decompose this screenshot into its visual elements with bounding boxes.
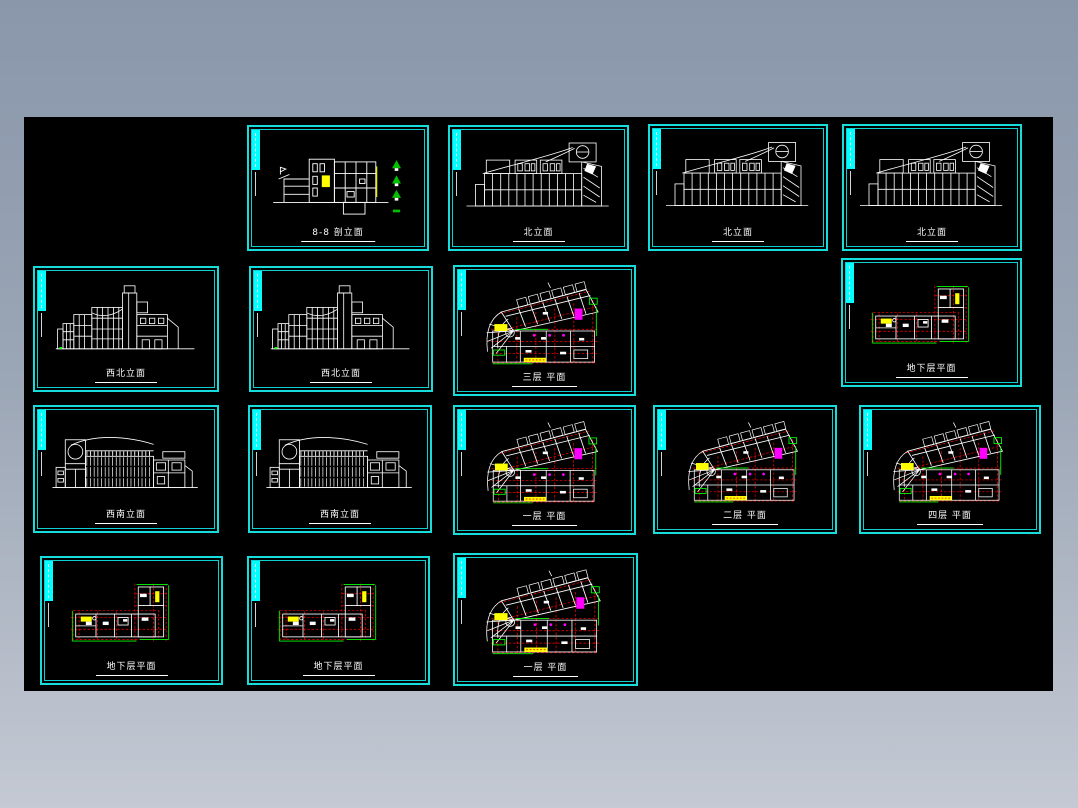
floor-plan-drawing (462, 414, 627, 508)
sheet-floor-plan-3: 三层 平面 (453, 265, 636, 396)
sheet-title: 一层 平面 (513, 663, 579, 677)
sheet-floor-plan-4: 四层 平面 (859, 405, 1041, 534)
sheet-title: 地下层平面 (302, 662, 374, 676)
cad-preview-page: 8-8 剖立面 北立面 北立面 北立面 西北立面 (0, 0, 1078, 808)
sheet-north-elevation: 北立面 (842, 124, 1022, 251)
sheet-floor-plan-2: 二层 平面 (653, 405, 837, 534)
sheet-title: 地下层平面 (895, 364, 967, 378)
basement-plan-drawing (49, 565, 214, 658)
basement-plan-drawing (850, 267, 1013, 360)
sheet-title: 8-8 剖立面 (301, 228, 375, 242)
sheet-title: 四层 平面 (917, 511, 983, 525)
sheet-title: 一层 平面 (512, 512, 578, 526)
sheet-basement-plan: 地下层平面 (247, 556, 430, 685)
sheet-title: 北立面 (712, 228, 764, 242)
sheet-floor-plan-1: 一层 平面 (453, 553, 638, 686)
section-elevation-drawing (256, 134, 420, 224)
north-elevation-drawing (457, 134, 620, 224)
sheet-title: 北立面 (512, 228, 564, 242)
north-elevation-drawing (657, 133, 819, 224)
sheet-section-elevation: 8-8 剖立面 (247, 125, 429, 251)
sheet-floor-plan-1: 一层 平面 (453, 405, 636, 535)
sheet-title: 西北立面 (310, 369, 372, 383)
sheet-title: 西北立面 (95, 369, 157, 383)
floor-plan-drawing (868, 414, 1032, 507)
sheet-northwest-elevation: 西北立面 (33, 266, 219, 392)
drawing-canvas: 8-8 剖立面 北立面 北立面 北立面 西北立面 (24, 117, 1053, 691)
floor-plan-drawing (662, 414, 828, 507)
sheet-title: 二层 平面 (712, 511, 778, 525)
sheet-southwest-elevation: 西南立面 (248, 405, 432, 533)
sheet-north-elevation: 北立面 (648, 124, 828, 251)
southwest-elevation-drawing (257, 414, 423, 506)
sheet-basement-plan: 地下层平面 (841, 258, 1022, 387)
floor-plan-drawing (462, 562, 629, 659)
sheet-basement-plan: 地下层平面 (40, 556, 223, 685)
sheet-southwest-elevation: 西南立面 (33, 405, 219, 533)
southwest-elevation-drawing (42, 414, 210, 506)
basement-plan-drawing (256, 565, 421, 658)
northwest-elevation-drawing (258, 275, 424, 365)
northwest-elevation-drawing (42, 275, 210, 365)
sheet-title: 地下层平面 (95, 662, 167, 676)
sheet-title: 西南立面 (95, 510, 157, 524)
sheet-north-elevation: 北立面 (448, 125, 629, 251)
sheet-title: 三层 平面 (512, 373, 578, 387)
north-elevation-drawing (851, 133, 1013, 224)
sheet-title: 西南立面 (309, 510, 371, 524)
sheet-northwest-elevation: 西北立面 (249, 266, 433, 392)
sheet-title: 北立面 (906, 228, 958, 242)
floor-plan-drawing (462, 274, 627, 369)
